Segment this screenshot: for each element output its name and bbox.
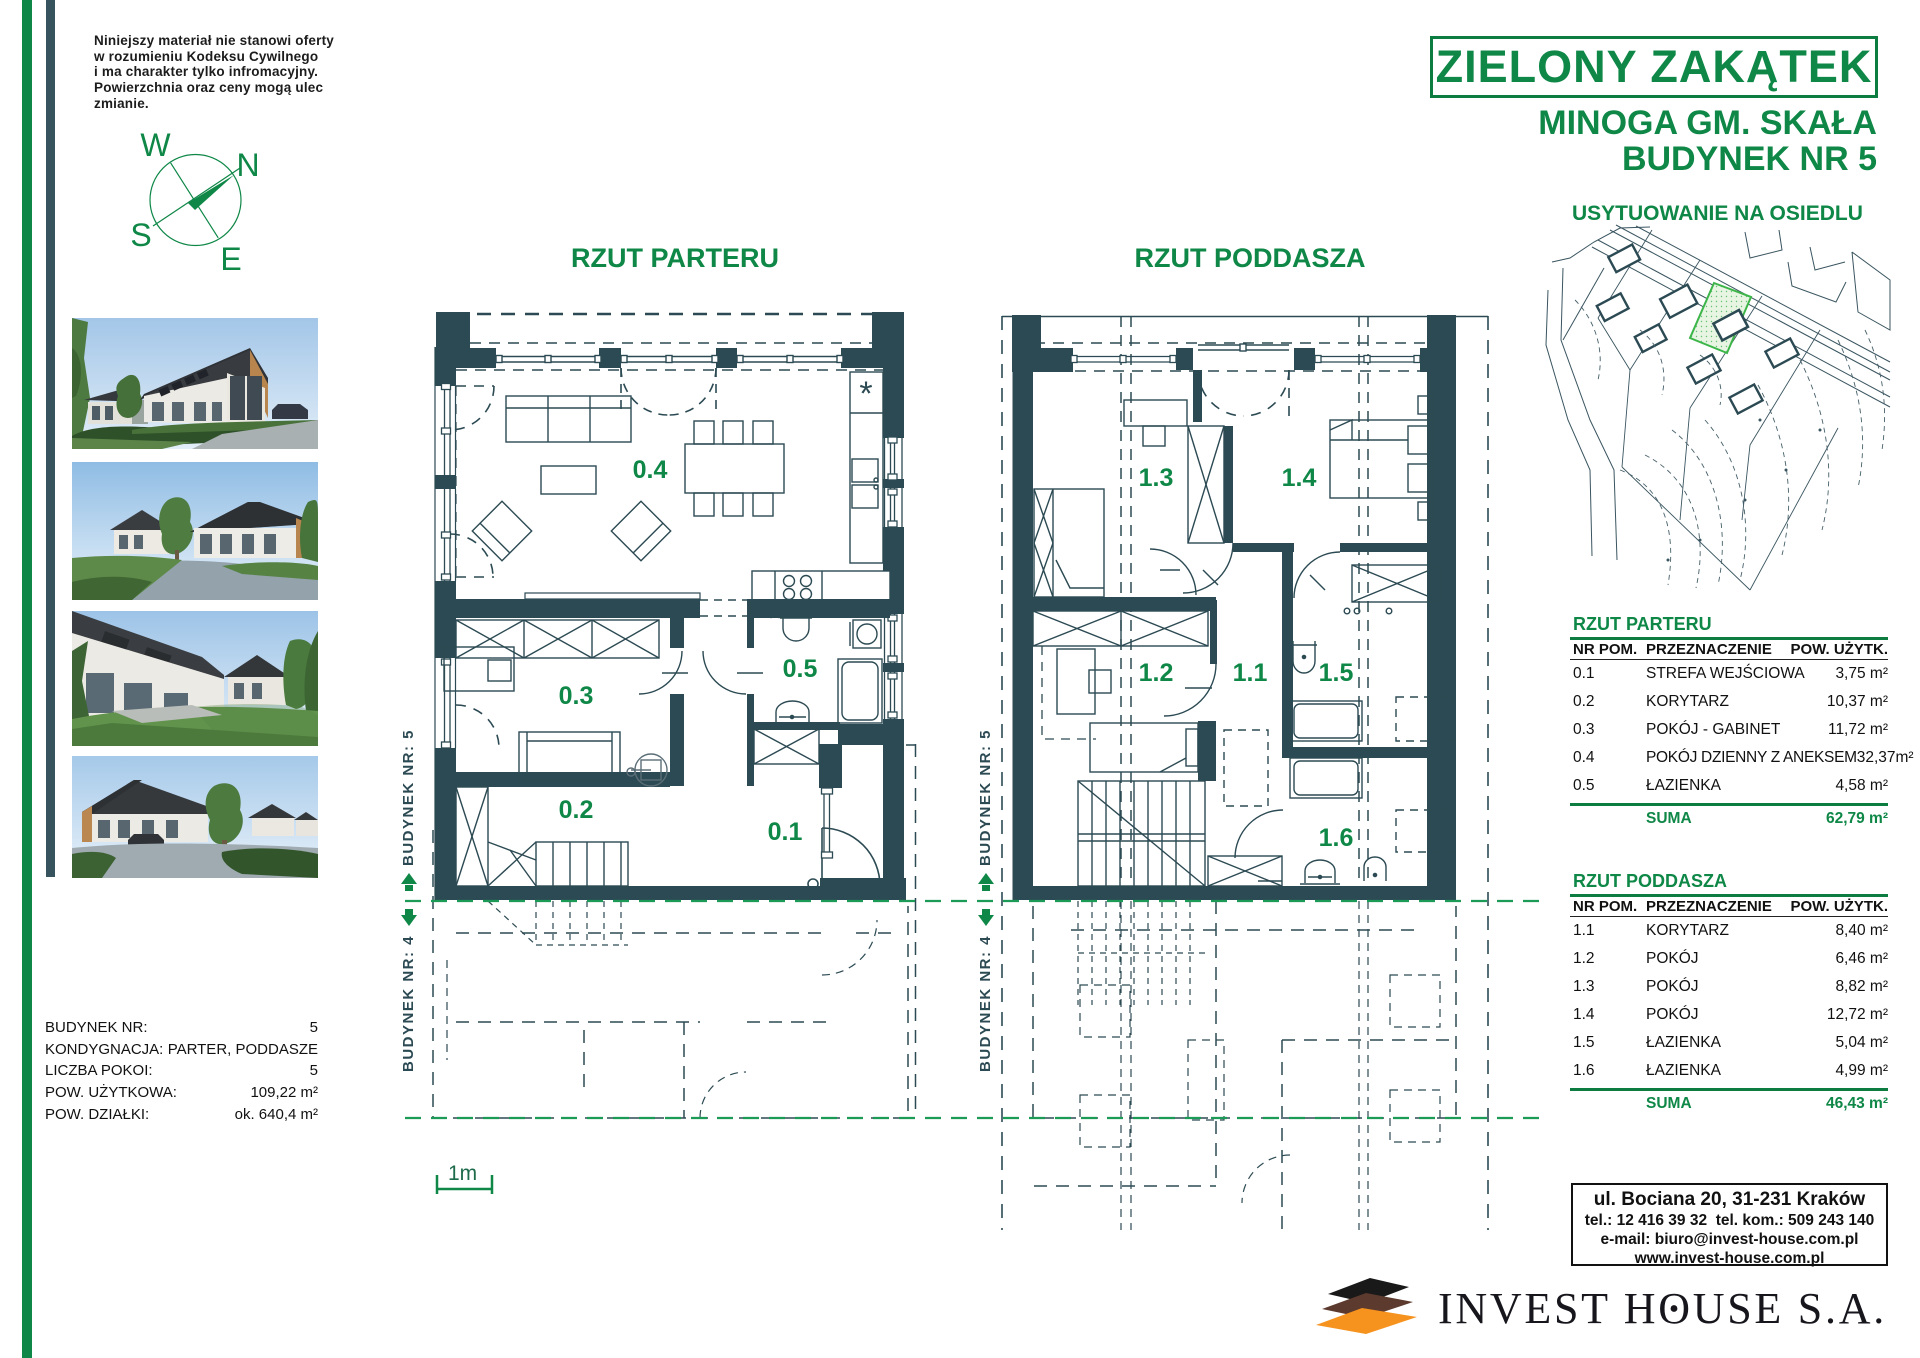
svg-text:1.4: 1.4 (1282, 464, 1317, 492)
svg-text:1.6: 1.6 (1319, 824, 1354, 852)
svg-text:BUDYNEK NR: 5: BUDYNEK NR: 5 (977, 729, 994, 866)
svg-text:1.1: 1.1 (1233, 659, 1268, 687)
svg-text:BUDYNEK NR: 5: BUDYNEK NR: 5 (400, 729, 417, 866)
svg-text:1m: 1m (448, 1162, 477, 1185)
svg-text:BUDYNEK NR: 4: BUDYNEK NR: 4 (400, 935, 417, 1072)
svg-text:0.5: 0.5 (783, 655, 818, 683)
svg-text:BUDYNEK NR: 4: BUDYNEK NR: 4 (977, 935, 994, 1072)
svg-text:*: * (859, 375, 872, 413)
svg-text:1.3: 1.3 (1139, 464, 1174, 492)
svg-text:0.3: 0.3 (559, 682, 594, 710)
svg-text:0.1: 0.1 (768, 818, 803, 846)
svg-text:0.2: 0.2 (559, 796, 594, 824)
svg-text:0.4: 0.4 (633, 456, 668, 484)
svg-text:1.5: 1.5 (1319, 659, 1354, 687)
svg-text:1.2: 1.2 (1139, 659, 1174, 687)
